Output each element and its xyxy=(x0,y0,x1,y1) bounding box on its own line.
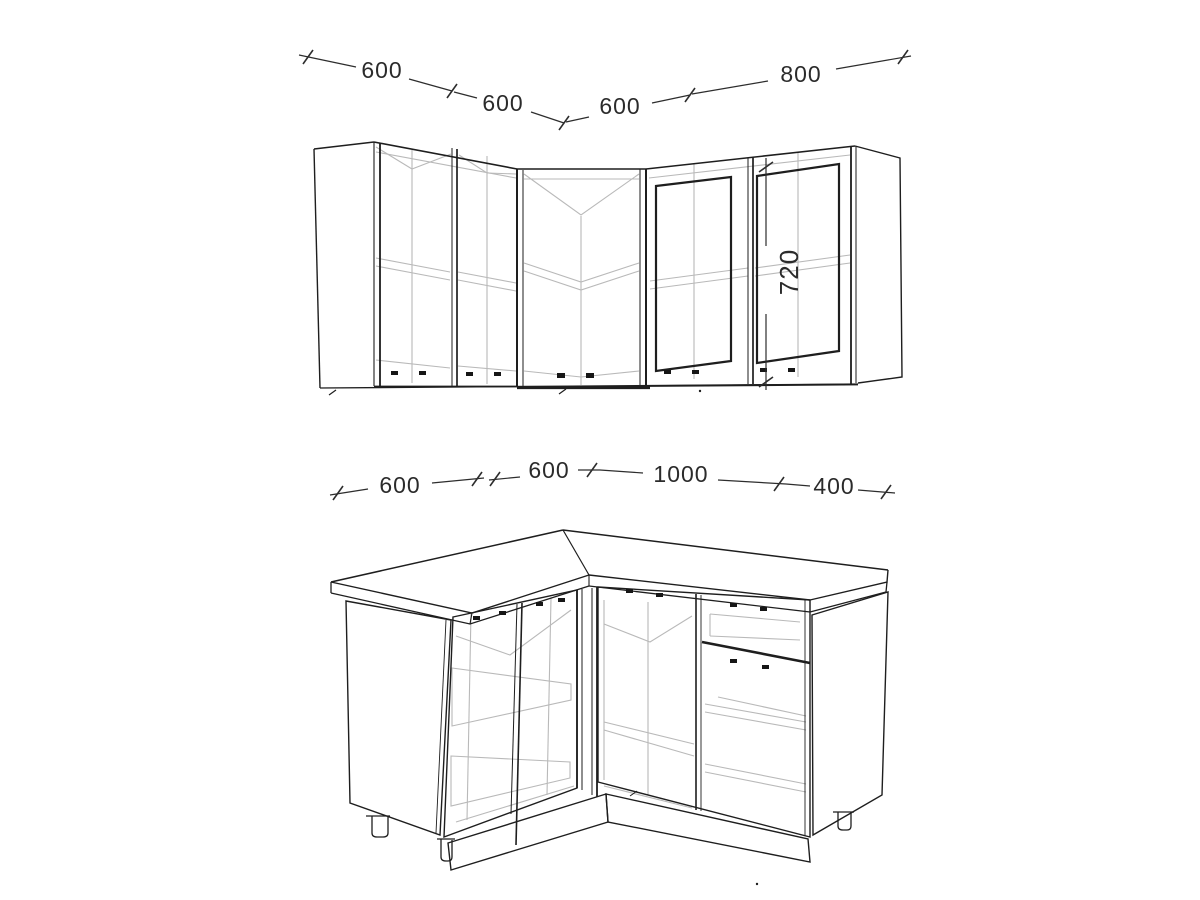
base-hinge-marks xyxy=(473,589,769,669)
base-cabinets-view: 600 600 1000 400 xyxy=(330,457,895,885)
base-cabinet-outline xyxy=(331,530,888,870)
dim-label-height: 720 xyxy=(774,249,804,295)
base-interior-lines xyxy=(451,598,806,822)
scan-speck xyxy=(756,883,758,885)
drawing-page: 600 600 600 800 720 xyxy=(0,0,1200,900)
kitchen-cabinet-technical-drawing: 600 600 600 800 720 xyxy=(0,0,1200,900)
wall-cabinets-view: 600 600 600 800 720 xyxy=(299,50,911,395)
dim-label-upper-4: 800 xyxy=(780,61,821,87)
dim-label-base-4: 400 xyxy=(813,473,854,499)
dim-label-upper-3: 600 xyxy=(599,93,640,119)
wall-dimension-lines: 600 600 600 800 xyxy=(299,50,911,130)
dim-label-base-1: 600 xyxy=(379,472,420,498)
cabinet-legs xyxy=(366,812,854,861)
scan-speck xyxy=(699,390,701,392)
dim-label-upper-2: 600 xyxy=(482,90,523,116)
dim-label-upper-1: 600 xyxy=(361,57,402,83)
base-dimension-lines: 600 600 1000 400 xyxy=(330,457,895,500)
dim-label-base-2: 600 xyxy=(528,457,569,483)
dim-label-base-3: 1000 xyxy=(653,461,708,487)
